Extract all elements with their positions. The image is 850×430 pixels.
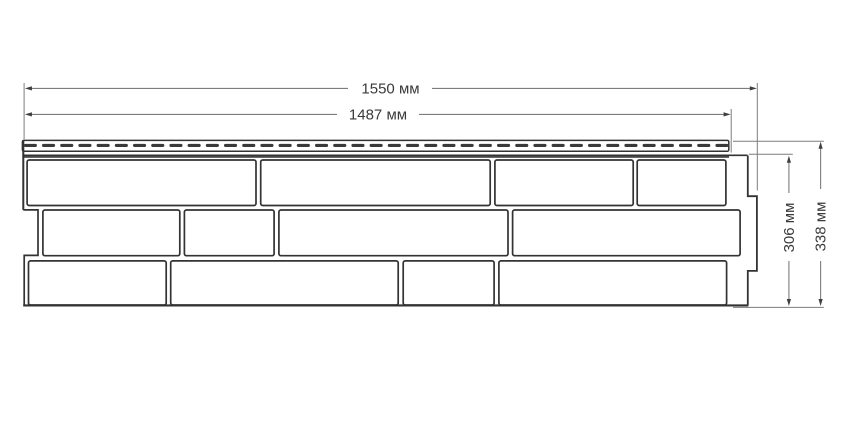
svg-text:1550 мм: 1550 мм: [361, 81, 419, 98]
svg-text:306 мм: 306 мм: [781, 203, 798, 253]
svg-text:338 мм: 338 мм: [812, 202, 829, 252]
svg-text:1487 мм: 1487 мм: [349, 107, 407, 124]
